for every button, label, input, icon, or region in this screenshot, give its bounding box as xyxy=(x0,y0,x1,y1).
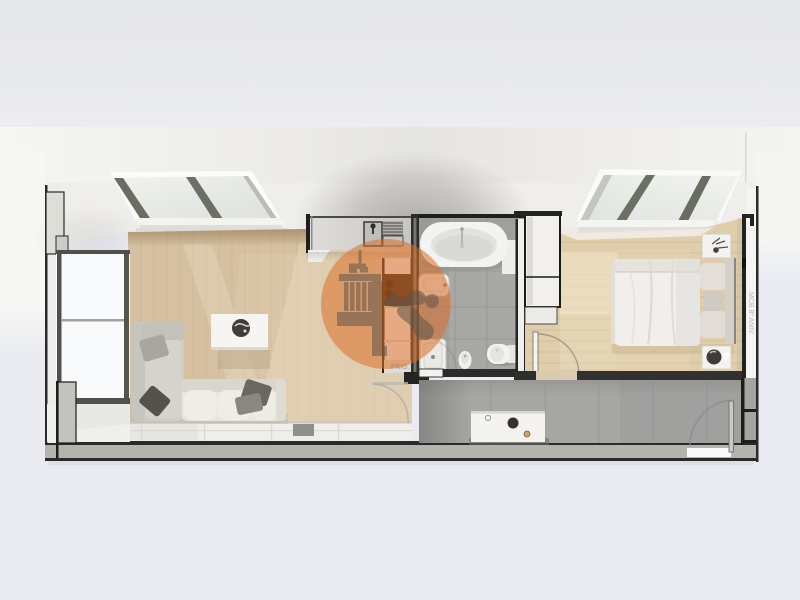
svg-text:MCB 8º ANIV: MCB 8º ANIV xyxy=(747,292,754,334)
